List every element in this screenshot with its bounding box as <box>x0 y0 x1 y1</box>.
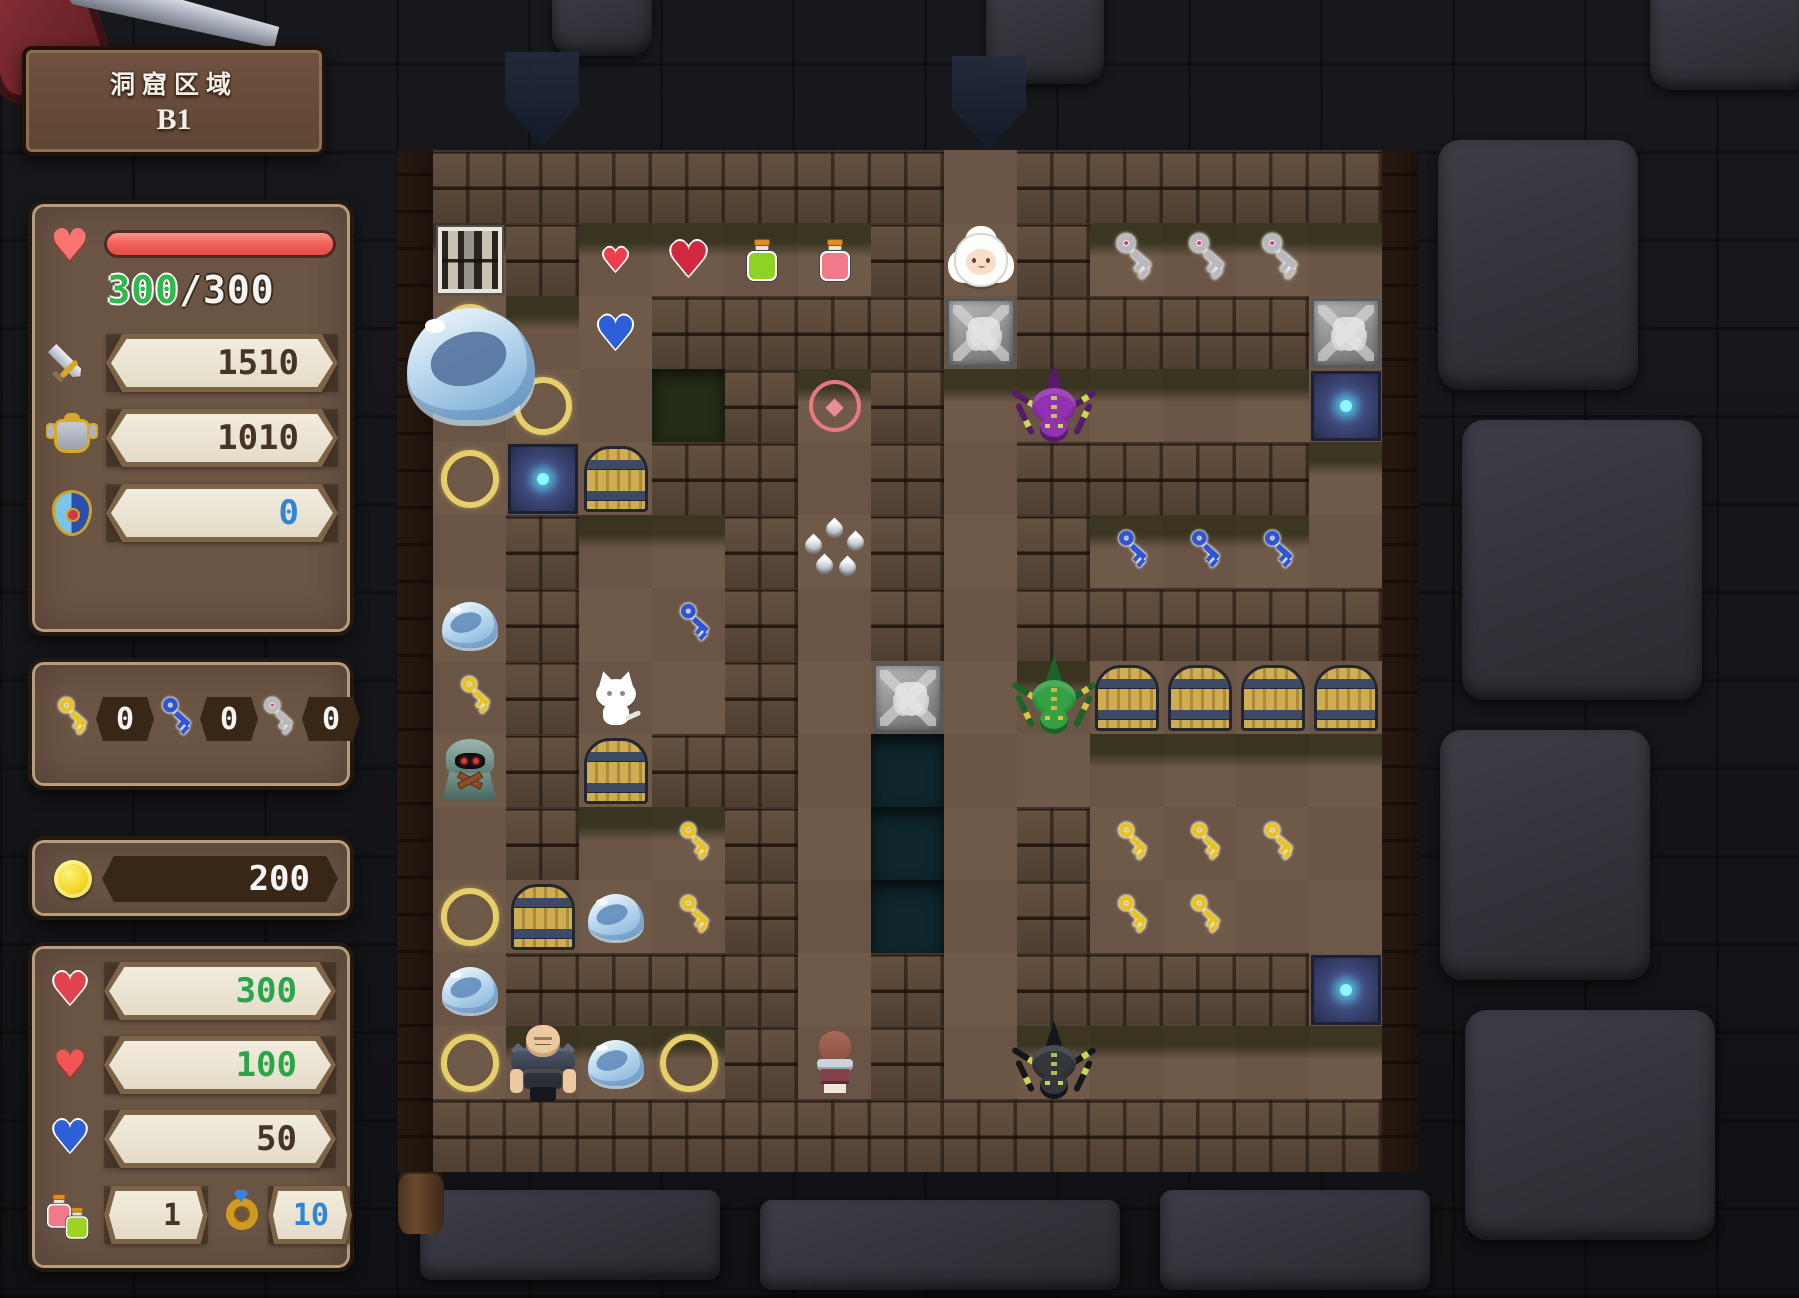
gold-panel: 200 <box>28 836 354 920</box>
map-tile <box>579 880 652 953</box>
map-tile <box>652 1026 725 1099</box>
map-tile <box>944 1026 1017 1099</box>
map-tile <box>725 734 798 807</box>
map-tile <box>871 296 944 369</box>
map-tile <box>798 442 871 515</box>
red-gem-value: 300 <box>109 967 331 1015</box>
map-tile <box>798 296 871 369</box>
wooden-door[interactable] <box>511 884 575 950</box>
map-tile <box>1017 369 1090 442</box>
yellow-key-item[interactable] <box>1173 890 1226 943</box>
map-tile <box>579 1026 652 1099</box>
magic-door[interactable] <box>1311 955 1381 1025</box>
map-tile <box>725 223 798 296</box>
map-tile <box>433 150 506 223</box>
magic-door[interactable] <box>1311 371 1381 441</box>
map-tile <box>725 369 798 442</box>
slime-monster[interactable] <box>588 1040 644 1086</box>
map-tile: ◆ <box>798 369 871 442</box>
map-tile <box>798 588 871 661</box>
items-panel: ♥ 300 ♥ 100 ♥ 50 1 10 <box>28 942 354 1272</box>
map-tile <box>433 1026 506 1099</box>
map-tile <box>433 442 506 515</box>
map-tile <box>871 807 944 880</box>
map-tile <box>1163 296 1236 369</box>
map-tile <box>944 953 1017 1026</box>
ring-count: 10 <box>273 1191 347 1239</box>
attack-row: 1510 <box>44 332 344 394</box>
map-tile <box>1236 661 1309 734</box>
map-tile <box>871 223 944 296</box>
map-tile <box>1236 734 1309 807</box>
map-tile <box>1309 734 1382 807</box>
map-tile <box>579 369 652 442</box>
map-tile <box>1017 880 1090 953</box>
yellow-key-item[interactable] <box>662 890 715 943</box>
stone-block <box>1650 0 1799 90</box>
map-tile <box>944 515 1017 588</box>
map-tile <box>652 150 725 223</box>
map-tile <box>871 1099 944 1172</box>
map-tile <box>506 442 579 515</box>
map-tile <box>652 515 725 588</box>
map-tile <box>652 369 725 442</box>
map-tile <box>1017 661 1090 734</box>
map-tile <box>1163 369 1236 442</box>
map-tile <box>1236 223 1309 296</box>
defense-row: 1010 <box>44 407 344 469</box>
map-tile <box>1090 953 1163 1026</box>
yellow-key-item[interactable] <box>662 817 715 870</box>
stone-column <box>1462 420 1702 700</box>
map-tile <box>1017 1026 1090 1099</box>
black-spider-monster[interactable] <box>1018 1021 1090 1105</box>
stone-block <box>552 0 652 56</box>
map-tile <box>1236 1099 1309 1172</box>
stone-column <box>1440 730 1650 980</box>
sheep-npc[interactable] <box>952 231 1010 289</box>
blue-key-item[interactable] <box>662 598 715 651</box>
gray-key-item[interactable] <box>1094 227 1159 292</box>
map-tile <box>725 515 798 588</box>
map-tile <box>652 807 725 880</box>
map-tile <box>579 588 652 661</box>
map-tile <box>1017 807 1090 880</box>
stone-emblem-tile <box>873 663 943 733</box>
hero-player[interactable] <box>812 1031 858 1095</box>
large-heart-item[interactable]: ♥ <box>667 236 710 284</box>
blue-gem-icon: ♥ <box>44 1112 96 1164</box>
map-tile <box>1236 953 1309 1026</box>
map-tile <box>1236 369 1309 442</box>
map-tile <box>944 880 1017 953</box>
map-tile <box>1017 953 1090 1026</box>
hp-heart-icon: ♥ <box>50 224 89 268</box>
map-tile <box>433 661 506 734</box>
map-tile <box>652 1099 725 1172</box>
wooden-door[interactable] <box>584 446 648 512</box>
map-tile <box>798 223 871 296</box>
yellow-key-item[interactable] <box>1246 817 1299 870</box>
map-tile <box>871 661 944 734</box>
barrel <box>398 1168 444 1234</box>
map-tile <box>798 953 871 1026</box>
purple-spider-monster[interactable] <box>1018 364 1090 448</box>
map-tile <box>944 1099 1017 1172</box>
stats-panel: ♥ 300/300 1510 1010 0 <box>28 200 354 636</box>
red-potion-item[interactable] <box>820 239 850 281</box>
defense-value: 1010 <box>111 414 333 462</box>
map-tile <box>725 442 798 515</box>
map-tile <box>1017 223 1090 296</box>
wooden-door[interactable] <box>1095 665 1159 731</box>
stone-column <box>1438 140 1638 390</box>
map-tile <box>1017 150 1090 223</box>
potion-ring-row: 1 10 <box>42 1184 342 1246</box>
map-tile <box>944 734 1017 807</box>
map-tile <box>798 880 871 953</box>
map-tile <box>433 880 506 953</box>
map-tile <box>871 1026 944 1099</box>
stone-emblem-tile <box>1311 298 1381 368</box>
gold-ring-marker <box>441 450 499 508</box>
map-tile <box>1163 223 1236 296</box>
heart-row: ♥ 100 <box>42 1034 342 1096</box>
map-tile <box>944 150 1017 223</box>
gold-ring-marker <box>441 1034 499 1092</box>
tile-grid: ♥♥♥◆ <box>433 150 1382 1172</box>
map-tile <box>1163 807 1236 880</box>
hp-value: 300/300 <box>32 268 350 312</box>
magic-defense-row: 0 <box>44 482 344 544</box>
yellow-key-counter: 0 <box>44 696 154 742</box>
map-tile <box>1309 150 1382 223</box>
map-tile <box>652 296 725 369</box>
heart-value: 100 <box>109 1041 331 1089</box>
map-tile <box>944 807 1017 880</box>
metal-drops-item[interactable] <box>803 521 867 583</box>
gray-key-counter: 0 <box>250 696 360 742</box>
map-tile <box>725 296 798 369</box>
map-tile <box>798 734 871 807</box>
bookshelf[interactable] <box>438 227 502 293</box>
stone-column <box>1465 1010 1715 1240</box>
map-tile <box>871 369 944 442</box>
heart-icon: ♥ <box>44 1038 96 1090</box>
map-tile <box>433 588 506 661</box>
stone-block <box>760 1200 1120 1290</box>
slime-monster[interactable] <box>442 967 498 1013</box>
map-tile <box>1017 1099 1090 1172</box>
map-tile <box>1090 1099 1163 1172</box>
map-tile: ♥ <box>579 223 652 296</box>
attack-value: 1510 <box>111 339 333 387</box>
map-tile <box>944 588 1017 661</box>
map-tile <box>944 661 1017 734</box>
map-tile <box>1309 369 1382 442</box>
map-tile <box>1309 953 1382 1026</box>
gold-ring-marker <box>660 1034 718 1092</box>
map-tile <box>1309 807 1382 880</box>
map-tile <box>725 661 798 734</box>
shield-icon <box>46 486 98 538</box>
map-tile <box>1163 150 1236 223</box>
map-tile <box>652 880 725 953</box>
map-tile <box>725 953 798 1026</box>
game-screen: 洞窟区域 B1 ♥ 300/300 1510 1010 0 0 0 <box>0 0 1799 1298</box>
map-tile <box>579 953 652 1026</box>
keys-panel: 0 0 0 <box>28 658 354 790</box>
map-tile <box>579 807 652 880</box>
gray-key-count: 0 <box>302 697 360 741</box>
blue-key-item[interactable] <box>1100 525 1153 578</box>
map-tile <box>433 515 506 588</box>
map-tile <box>944 369 1017 442</box>
map-tile <box>1309 223 1382 296</box>
map-tile <box>1309 588 1382 661</box>
map-tile <box>1090 369 1163 442</box>
map-tile <box>1090 661 1163 734</box>
map-tile <box>1017 442 1090 515</box>
hooded-monster[interactable] <box>441 739 499 803</box>
yellow-key-item[interactable] <box>1100 890 1153 943</box>
yellow-key-item[interactable] <box>1100 817 1153 870</box>
map-tile <box>871 588 944 661</box>
armor-icon <box>46 411 98 463</box>
map-tile <box>798 1026 871 1099</box>
map-tile <box>1017 515 1090 588</box>
map-tile <box>579 442 652 515</box>
wooden-door[interactable] <box>1168 665 1232 731</box>
hp-row: ♥ <box>48 226 338 266</box>
ring-icon <box>220 1190 264 1234</box>
map-tile <box>506 588 579 661</box>
map-tile <box>1090 807 1163 880</box>
gold-coin-icon <box>54 860 92 898</box>
hp-bar <box>104 230 336 258</box>
map-tile <box>1163 880 1236 953</box>
map-tile <box>433 953 506 1026</box>
red-gem-circle-marker: ◆ <box>809 380 861 432</box>
map-tile <box>871 150 944 223</box>
hp-current: 300 <box>107 268 179 312</box>
map-tile <box>1090 442 1163 515</box>
map-tile <box>506 1026 579 1099</box>
map-tile <box>1163 734 1236 807</box>
map-tile <box>579 734 652 807</box>
map-tile <box>506 223 579 296</box>
dungeon-map: ♥♥♥◆ <box>397 150 1418 1172</box>
red-gem-icon: ♥ <box>44 964 96 1016</box>
small-heart-item[interactable]: ♥ <box>601 244 630 276</box>
map-tile <box>1309 296 1382 369</box>
red-gem-row: ♥ 300 <box>42 960 342 1022</box>
map-tile <box>871 734 944 807</box>
magic-defense-value: 0 <box>111 489 333 537</box>
floor-label: B1 <box>156 103 191 137</box>
map-tile <box>1163 1099 1236 1172</box>
sword-icon <box>46 336 98 388</box>
map-tile <box>433 1099 506 1172</box>
slime-monster[interactable] <box>588 894 644 940</box>
map-tile <box>1090 150 1163 223</box>
blue-key-item[interactable] <box>1246 525 1299 578</box>
map-tile <box>433 734 506 807</box>
map-tile <box>433 223 506 296</box>
map-tile <box>1236 807 1309 880</box>
map-tile <box>579 661 652 734</box>
blue-gem-value: 50 <box>109 1115 331 1163</box>
yellow-key-item[interactable] <box>1173 817 1226 870</box>
yellow-key-item[interactable] <box>443 671 496 724</box>
magic-door[interactable] <box>508 444 578 514</box>
map-tile <box>506 953 579 1026</box>
gray-key-item[interactable] <box>1240 227 1305 292</box>
map-tile <box>1090 1026 1163 1099</box>
map-tile <box>725 807 798 880</box>
map-tile <box>652 661 725 734</box>
map-tile <box>798 1099 871 1172</box>
map-tile <box>506 515 579 588</box>
map-tile <box>506 150 579 223</box>
map-tile <box>1090 734 1163 807</box>
map-tile <box>1090 588 1163 661</box>
map-tile <box>871 953 944 1026</box>
map-tile <box>944 442 1017 515</box>
dwarf-warrior-monster[interactable] <box>510 1025 576 1101</box>
location-title: 洞窟区域 <box>110 65 238 101</box>
map-tile <box>725 150 798 223</box>
map-tile <box>1309 442 1382 515</box>
wooden-door[interactable] <box>584 738 648 804</box>
map-tile <box>1163 588 1236 661</box>
yellow-key-icon <box>40 692 93 745</box>
map-tile <box>798 515 871 588</box>
map-tile <box>1090 880 1163 953</box>
gray-key-icon <box>246 692 299 745</box>
slime-monster[interactable] <box>442 602 498 648</box>
map-tile <box>725 1026 798 1099</box>
map-tile <box>1163 953 1236 1026</box>
potions-icon <box>44 1188 96 1244</box>
map-tile <box>1017 588 1090 661</box>
map-tile <box>944 223 1017 296</box>
map-tile <box>798 661 871 734</box>
map-tile <box>1017 734 1090 807</box>
map-tile <box>871 442 944 515</box>
location-banner: 洞窟区域 B1 <box>22 46 326 156</box>
map-tile <box>652 588 725 661</box>
map-tile <box>506 807 579 880</box>
map-tile <box>1309 880 1382 953</box>
map-tile <box>1236 296 1309 369</box>
map-tile <box>871 880 944 953</box>
big-slime-monster[interactable] <box>407 308 535 420</box>
map-tile: ♥ <box>579 296 652 369</box>
map-tile <box>1163 661 1236 734</box>
wooden-door[interactable] <box>1314 665 1378 731</box>
stone-emblem-tile <box>946 298 1016 368</box>
map-tile: ♥ <box>652 223 725 296</box>
map-tile <box>1236 442 1309 515</box>
stone-block <box>420 1190 720 1280</box>
blue-gem-item[interactable]: ♥ <box>595 310 636 356</box>
blue-gem-row: ♥ 50 <box>42 1108 342 1170</box>
map-tile <box>1236 588 1309 661</box>
map-tile <box>579 150 652 223</box>
map-tile <box>1163 1026 1236 1099</box>
potion-count: 1 <box>109 1191 203 1239</box>
outer-wall-left <box>397 150 433 1172</box>
map-tile <box>725 880 798 953</box>
map-tile <box>725 1099 798 1172</box>
map-tile <box>1236 150 1309 223</box>
map-tile <box>1309 661 1382 734</box>
green-potion-item[interactable] <box>747 239 777 281</box>
wooden-door[interactable] <box>1241 665 1305 731</box>
hp-max: /300 <box>179 268 275 312</box>
map-tile <box>1309 515 1382 588</box>
map-tile <box>652 442 725 515</box>
map-tile <box>1309 1099 1382 1172</box>
map-tile <box>579 515 652 588</box>
outer-wall-right <box>1382 150 1418 1172</box>
map-tile <box>798 807 871 880</box>
gray-key-item[interactable] <box>1167 227 1232 292</box>
map-tile <box>871 515 944 588</box>
map-tile <box>1309 1026 1382 1099</box>
map-tile <box>1163 515 1236 588</box>
map-tile <box>506 880 579 953</box>
map-tile <box>1090 296 1163 369</box>
map-tile <box>1163 442 1236 515</box>
map-tile <box>579 1099 652 1172</box>
map-tile <box>652 953 725 1026</box>
blue-key-item[interactable] <box>1173 525 1226 578</box>
map-tile <box>798 150 871 223</box>
stone-block <box>1160 1190 1430 1290</box>
gold-value: 200 <box>102 856 338 902</box>
blue-key-icon <box>144 692 197 745</box>
map-tile <box>1090 515 1163 588</box>
map-tile <box>1236 1026 1309 1099</box>
map-tile <box>725 588 798 661</box>
map-tile <box>506 734 579 807</box>
gold-ring-marker <box>441 888 499 946</box>
map-tile <box>1236 515 1309 588</box>
map-tile <box>506 1099 579 1172</box>
map-tile <box>433 807 506 880</box>
green-spider-monster[interactable] <box>1018 656 1090 740</box>
map-tile <box>1017 296 1090 369</box>
blue-key-counter: 0 <box>148 696 258 742</box>
map-tile <box>652 734 725 807</box>
map-tile <box>506 661 579 734</box>
map-tile <box>1090 223 1163 296</box>
white-cat-monster[interactable] <box>589 669 643 727</box>
map-tile <box>1236 880 1309 953</box>
map-tile <box>944 296 1017 369</box>
